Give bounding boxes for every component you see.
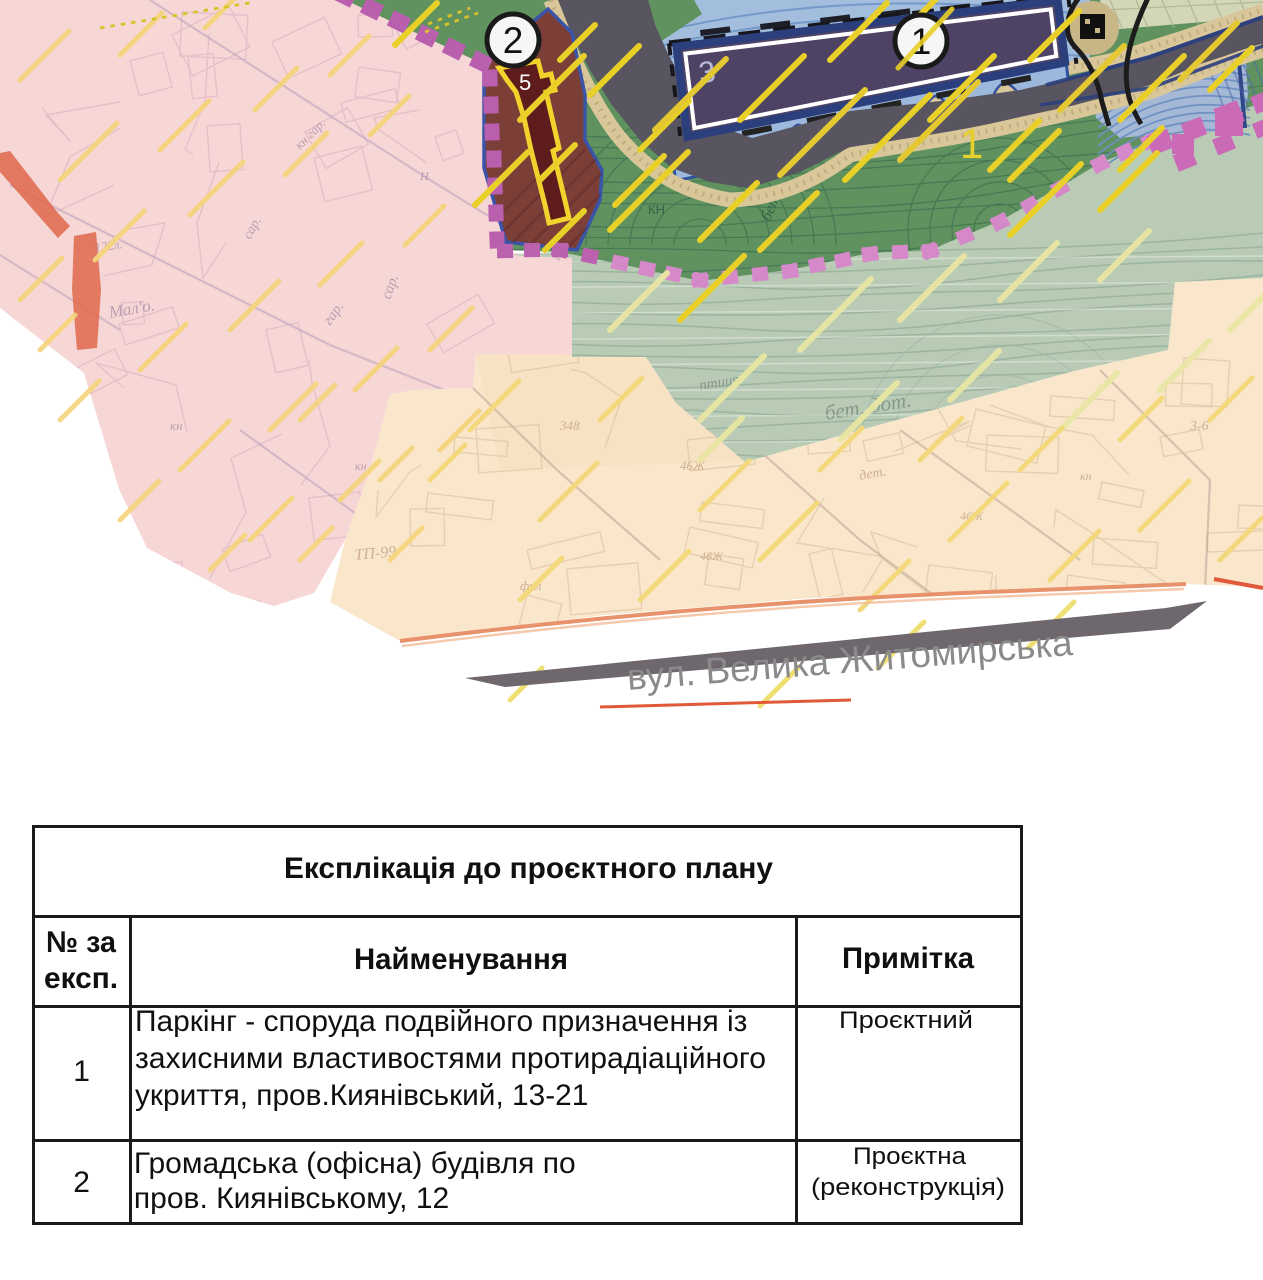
svg-text:вул. Велика Житомирська: вул. Велика Житомирська bbox=[625, 622, 1074, 698]
svg-text:кн: кн bbox=[1080, 469, 1092, 483]
svg-text:5: 5 bbox=[519, 70, 531, 95]
svg-text:кн: кн bbox=[170, 418, 183, 433]
svg-text:46Ж: 46Ж bbox=[700, 549, 724, 563]
svg-text:Н: Н bbox=[419, 169, 430, 183]
svg-text:2: 2 bbox=[503, 20, 524, 61]
svg-text:348: 348 bbox=[559, 418, 580, 433]
svg-text:3-6: 3-6 bbox=[1189, 419, 1209, 434]
svg-text:кн: кн bbox=[355, 459, 367, 473]
svg-text:КН: КН bbox=[648, 202, 665, 217]
svg-text:1: 1 bbox=[960, 120, 983, 167]
